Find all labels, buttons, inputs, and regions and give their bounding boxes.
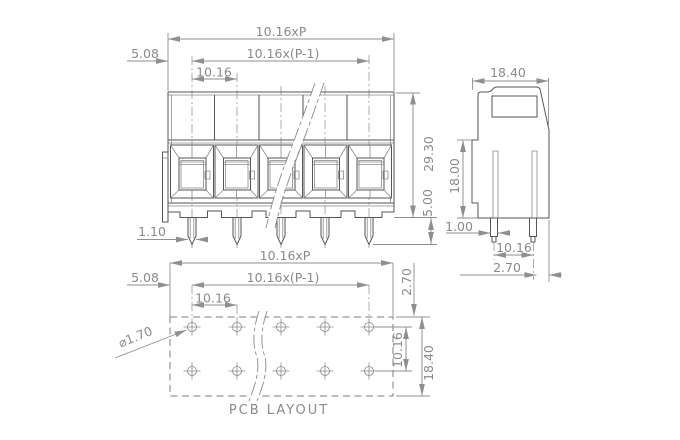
terminal-cavity [349,145,392,198]
terminal-cavity [215,145,258,198]
solder-pin [188,218,196,245]
dim-front-pole-span: 10.16x(P-1) [247,46,320,61]
side-view: 18.40 18.00 1.00 10.16 2.70 [445,65,562,282]
dim-pcb-row-spacing: 10.16 [390,332,405,368]
side-flange-tab [163,152,169,222]
dim-front-total-width: 10.16xP [256,24,307,39]
dim-front-pin-width: 1.10 [138,224,166,239]
dim-front-pitch: 10.16 [196,65,232,80]
terminal-cavity [171,145,214,198]
side-solder-pins [491,218,537,242]
mounting-hole [361,363,378,380]
pcb-dimensions: 10.16xP 10.16x(P-1) 5.08 10.16 ⌀1.70 2.7… [115,248,436,396]
side-body [472,87,549,242]
front-solder-pins [188,218,373,245]
dim-pcb-end-margin: 5.08 [131,270,159,285]
technical-drawing-page: 10.16xP 10.16x(P-1) 5.08 10.16 29.30 5.0… [0,0,680,440]
mounting-hole [229,319,246,336]
mounting-hole [273,319,290,336]
dim-side-pin-to-edge: 2.70 [493,260,521,275]
mounting-hole [317,319,334,336]
mounting-holes [184,319,378,380]
dim-side-base-height: 18.00 [447,158,462,194]
mounting-hole [229,363,246,380]
dim-pcb-hole-diameter: ⌀1.70 [116,323,154,350]
dim-front-end-margin: 5.08 [131,46,159,61]
dim-front-body-height: 29.30 [421,136,436,172]
mounting-hole [184,363,201,380]
dim-side-depth: 18.40 [490,65,526,80]
pcb-break-lines [249,311,267,401]
pcb-layout-title: PCB LAYOUT [229,403,329,418]
dim-side-pin-width: 1.00 [445,219,473,234]
solder-pin [321,218,329,245]
dim-pcb-outline-height: 18.40 [421,345,436,381]
solder-pin [277,218,285,245]
dim-pcb-pole-span: 10.16x(P-1) [247,270,320,285]
pcb-outline [170,317,393,396]
solder-pin [233,218,241,245]
mounting-hole [317,363,334,380]
dim-front-pin-length: 5.00 [420,189,435,217]
terminal-cavity [304,145,347,198]
dim-pcb-pitch: 10.16 [195,291,231,306]
pcb-layout: 10.16xP 10.16x(P-1) 5.08 10.16 ⌀1.70 2.7… [115,248,436,418]
dim-pcb-total-width: 10.16xP [260,248,311,263]
front-view: 10.16xP 10.16x(P-1) 5.08 10.16 29.30 5.0… [127,24,437,248]
dim-pcb-edge-to-row: 2.70 [399,268,414,296]
solder-pin [365,218,373,245]
mounting-hole [273,363,290,380]
dim-side-pin-pitch: 10.16 [496,240,532,255]
drawing-canvas: 10.16xP 10.16x(P-1) 5.08 10.16 29.30 5.0… [0,0,680,440]
